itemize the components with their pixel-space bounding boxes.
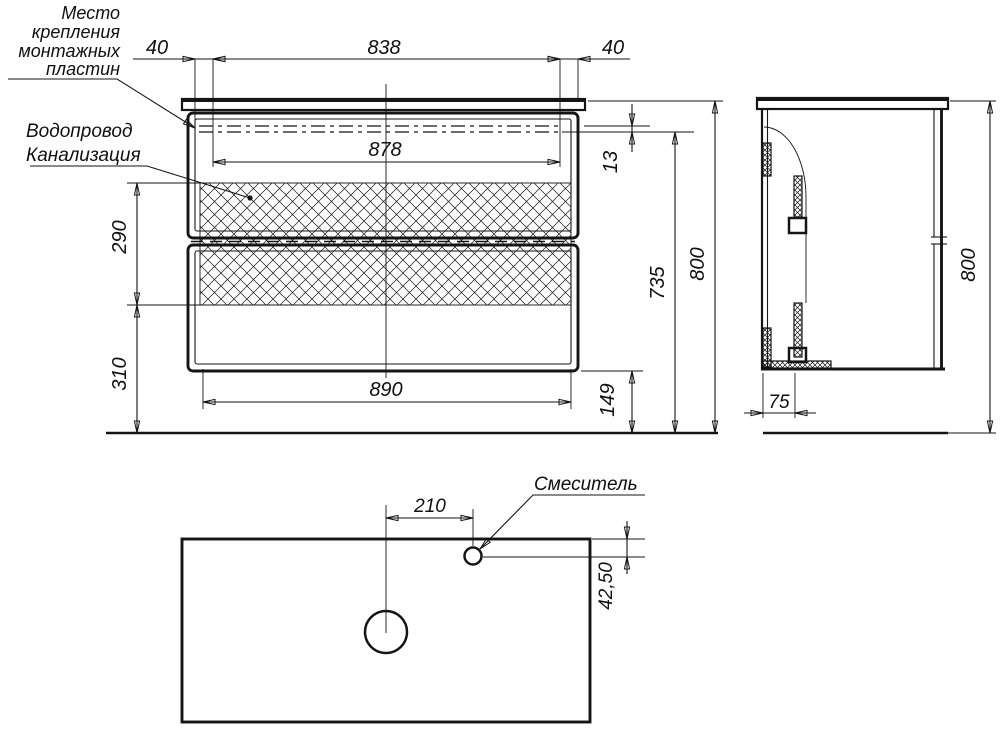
dim-890: 890 [369, 379, 402, 401]
side-dimensions: 75 800 [744, 101, 996, 433]
leader-dot [247, 195, 252, 200]
mounting-plate-bottom-back [763, 328, 771, 367]
dim-210: 210 [413, 496, 446, 517]
technical-drawing: 40 838 40 878 13 290 310 890 149 735 800 [0, 0, 1000, 731]
plumbing-note-line-1: Водопровод [26, 121, 132, 142]
mounting-plate-top-back [763, 143, 771, 176]
dim-290: 290 [109, 220, 131, 254]
mixer-hole [465, 548, 482, 565]
dim-13: 13 [600, 151, 622, 173]
dim-40-left: 40 [146, 37, 168, 59]
mounting-bracket-top [789, 218, 806, 233]
mixer-leader [480, 495, 645, 549]
dim-75: 75 [768, 392, 790, 413]
dim-40-right: 40 [602, 37, 624, 59]
mounting-note-line-2: крепления [32, 22, 121, 42]
dim-800-front: 800 [687, 247, 709, 280]
drawing-canvas: 40 838 40 878 13 290 310 890 149 735 800 [0, 0, 1000, 731]
mounting-note-line-1: Место [61, 3, 120, 23]
mounting-note-line-4: пластин [46, 59, 120, 79]
mounting-plate-top [794, 176, 802, 217]
dim-800-side: 800 [958, 248, 980, 281]
front-view [106, 84, 718, 433]
dim-42-50: 42,50 [596, 562, 617, 610]
plumbing-note-line-2: Канализация [26, 145, 141, 166]
dim-878: 878 [368, 139, 401, 161]
mixer-label: Смеситель [534, 474, 638, 495]
mounting-note-line-3: монтажных [18, 41, 121, 61]
dim-310: 310 [109, 357, 131, 390]
dim-149: 149 [597, 383, 619, 416]
plan-view: 210 42,50 [182, 496, 645, 722]
dim-735: 735 [647, 265, 669, 299]
dim-838: 838 [367, 37, 400, 59]
